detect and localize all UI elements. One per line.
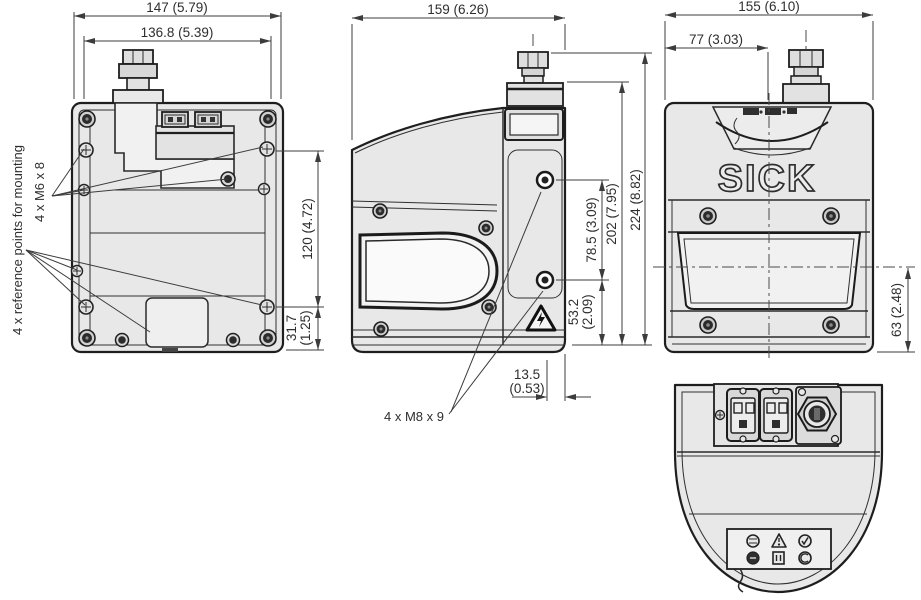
io-connector xyxy=(162,112,188,127)
back-view: 147 (5.79) 136.8 (5.39) xyxy=(10,0,324,352)
cable-gland xyxy=(113,50,163,103)
cable-gland xyxy=(507,52,563,106)
connector-screw xyxy=(799,389,806,396)
dim-label: 202 (7.95) xyxy=(604,183,619,245)
arrowhead-icon xyxy=(84,38,95,44)
arrowhead-icon xyxy=(665,45,676,51)
dim-label: 13.5 xyxy=(514,367,540,382)
dim-side-hole-to-bottom: 53.2 (2.09) xyxy=(566,280,605,345)
io-connector xyxy=(727,388,759,442)
socket-slot xyxy=(814,408,820,420)
connector-screw xyxy=(740,436,746,442)
arrowhead-icon xyxy=(315,151,321,162)
dim-label: 159 (6.26) xyxy=(427,2,489,17)
arrowhead-icon xyxy=(554,15,565,21)
arrowhead-icon xyxy=(74,13,85,19)
arrowhead-icon xyxy=(599,280,605,291)
screw-icon xyxy=(116,334,129,347)
bottom-notch xyxy=(162,348,178,352)
status-panel xyxy=(727,529,831,569)
connector-plate xyxy=(156,126,234,159)
screw-icon xyxy=(374,322,388,336)
arrowhead-icon xyxy=(315,296,321,307)
front-device: SICK xyxy=(653,50,915,362)
io-connector xyxy=(760,388,792,442)
gland-nut xyxy=(119,64,157,78)
gland-base xyxy=(783,84,829,103)
status-indicator-icon xyxy=(747,535,759,547)
screw-icon xyxy=(479,221,493,235)
cable-gland xyxy=(783,50,829,103)
gland-cap xyxy=(518,52,548,68)
reference-points-note: 4 x reference points for mounting xyxy=(10,145,25,335)
gland-collar xyxy=(791,76,821,84)
arrowhead-icon xyxy=(599,334,605,345)
arrowhead-icon xyxy=(642,53,648,64)
arrowhead-icon xyxy=(270,13,281,19)
screw-icon xyxy=(823,208,839,224)
connector-screw xyxy=(773,388,779,394)
side-device xyxy=(352,52,565,352)
connector-pin xyxy=(772,420,780,428)
arrowhead-icon xyxy=(565,394,576,400)
dim-label: 155 (6.10) xyxy=(738,0,800,14)
reference-point-icon xyxy=(260,300,274,314)
m8-hole-icon xyxy=(537,172,553,188)
arrowhead-icon xyxy=(642,334,648,345)
screw-icon xyxy=(700,208,716,224)
dim-back-width-outer: 147 (5.79) xyxy=(74,0,281,99)
scan-aperture-inner xyxy=(366,239,489,303)
gland-neck xyxy=(127,78,149,90)
dim-label: 136.8 (5.39) xyxy=(141,25,214,40)
dim-back-width-inner: 136.8 (5.39) xyxy=(84,25,271,99)
dim-label: 63 (2.48) xyxy=(889,283,904,337)
arrowhead-icon xyxy=(905,268,911,279)
screw-icon xyxy=(373,204,387,218)
arrowhead-icon xyxy=(352,15,363,21)
screw-icon xyxy=(700,317,716,333)
screw-icon xyxy=(79,111,95,127)
side-view: 159 (6.26) xyxy=(352,2,652,424)
dim-label: 31.7 xyxy=(284,315,299,341)
ok-indicator-icon xyxy=(799,535,811,547)
m6-note: 4 x M6 x 8 xyxy=(32,162,47,222)
cap-connector xyxy=(743,108,759,115)
top-view xyxy=(675,384,882,592)
screw-icon xyxy=(260,111,276,127)
connector-pin xyxy=(177,117,182,122)
connector-screw xyxy=(832,436,839,443)
dim-label: (1.25) xyxy=(298,310,313,345)
round-connector xyxy=(796,387,841,444)
connector-pin xyxy=(201,117,206,122)
dim-label: (2.09) xyxy=(580,294,595,329)
front-view: 155 (6.10) 77 (3.03) xyxy=(653,0,915,362)
status-indicator-icon xyxy=(799,552,811,564)
display-window-inner xyxy=(510,114,558,135)
arrowhead-icon xyxy=(619,82,625,93)
drawing-svg: 147 (5.79) 136.8 (5.39) xyxy=(0,0,921,600)
dim-front-center-offset: 77 (3.03) xyxy=(665,32,768,100)
screw-icon xyxy=(260,330,276,346)
connector-pin xyxy=(739,420,747,428)
cap-detail xyxy=(759,110,762,113)
screw-icon xyxy=(823,317,839,333)
arrowhead-icon xyxy=(905,341,911,352)
back-device xyxy=(72,50,284,352)
cap-detail xyxy=(782,110,785,113)
arrowhead-icon xyxy=(260,38,271,44)
connector-pin xyxy=(168,117,173,122)
dim-front-width: 155 (6.10) xyxy=(665,0,873,100)
gland-cap xyxy=(789,50,823,67)
reference-point-icon xyxy=(79,300,93,314)
arrowhead-icon xyxy=(757,45,768,51)
brand-logo: SICK xyxy=(718,158,817,200)
connector-body xyxy=(162,112,188,127)
m8-hole-icon xyxy=(537,272,553,288)
m6-hole-icon xyxy=(259,184,270,195)
arrowhead-icon xyxy=(619,334,625,345)
dim-label: 78.5 (3.09) xyxy=(584,197,599,262)
io-connector xyxy=(195,112,221,127)
arrowhead-icon xyxy=(315,307,321,318)
status-indicator-icon xyxy=(747,552,759,564)
arrowhead-icon xyxy=(862,12,873,18)
dim-label: 147 (5.79) xyxy=(146,0,208,15)
dim-label: 120 (4.72) xyxy=(300,198,315,260)
dim-side-depth-offset: 13.5 (0.53) xyxy=(509,354,591,401)
m6-hole-icon xyxy=(72,266,83,277)
dim-front-scan-height: 63 (2.48) xyxy=(877,268,915,352)
gland-base xyxy=(113,90,163,103)
gland-collar xyxy=(524,76,543,83)
screw-icon xyxy=(716,411,725,420)
cap-connector xyxy=(787,108,797,114)
arrowhead-icon xyxy=(599,269,605,280)
dim-label: 77 (3.03) xyxy=(689,32,743,47)
reference-point-icon xyxy=(79,143,93,157)
dim-back-height-lower: 31.7 (1.25) xyxy=(284,307,324,350)
gland-neck xyxy=(794,67,818,76)
m8-note: 4 x M8 x 9 xyxy=(384,409,444,424)
cap-connector xyxy=(765,108,781,115)
reference-point-icon xyxy=(260,142,274,156)
ossd-indicator-icon xyxy=(773,552,784,564)
screw-icon xyxy=(227,334,240,347)
arrowhead-icon xyxy=(315,339,321,350)
housing-outline xyxy=(352,108,565,352)
dim-label: (0.53) xyxy=(509,381,544,396)
connector-body xyxy=(195,112,221,127)
dim-label: 53.2 xyxy=(566,299,581,325)
dim-label: 224 (8.82) xyxy=(628,169,643,231)
gland-cap xyxy=(123,50,153,64)
gland-neck xyxy=(522,68,544,76)
gland-base xyxy=(507,83,563,106)
bottom-recess xyxy=(146,298,208,347)
screw-icon xyxy=(79,330,95,346)
connector-pin xyxy=(210,117,215,122)
connector-screw xyxy=(740,388,746,394)
connector-screw xyxy=(773,436,779,442)
arrowhead-icon xyxy=(665,12,676,18)
dimensional-drawing: 147 (5.79) 136.8 (5.39) xyxy=(0,0,921,600)
